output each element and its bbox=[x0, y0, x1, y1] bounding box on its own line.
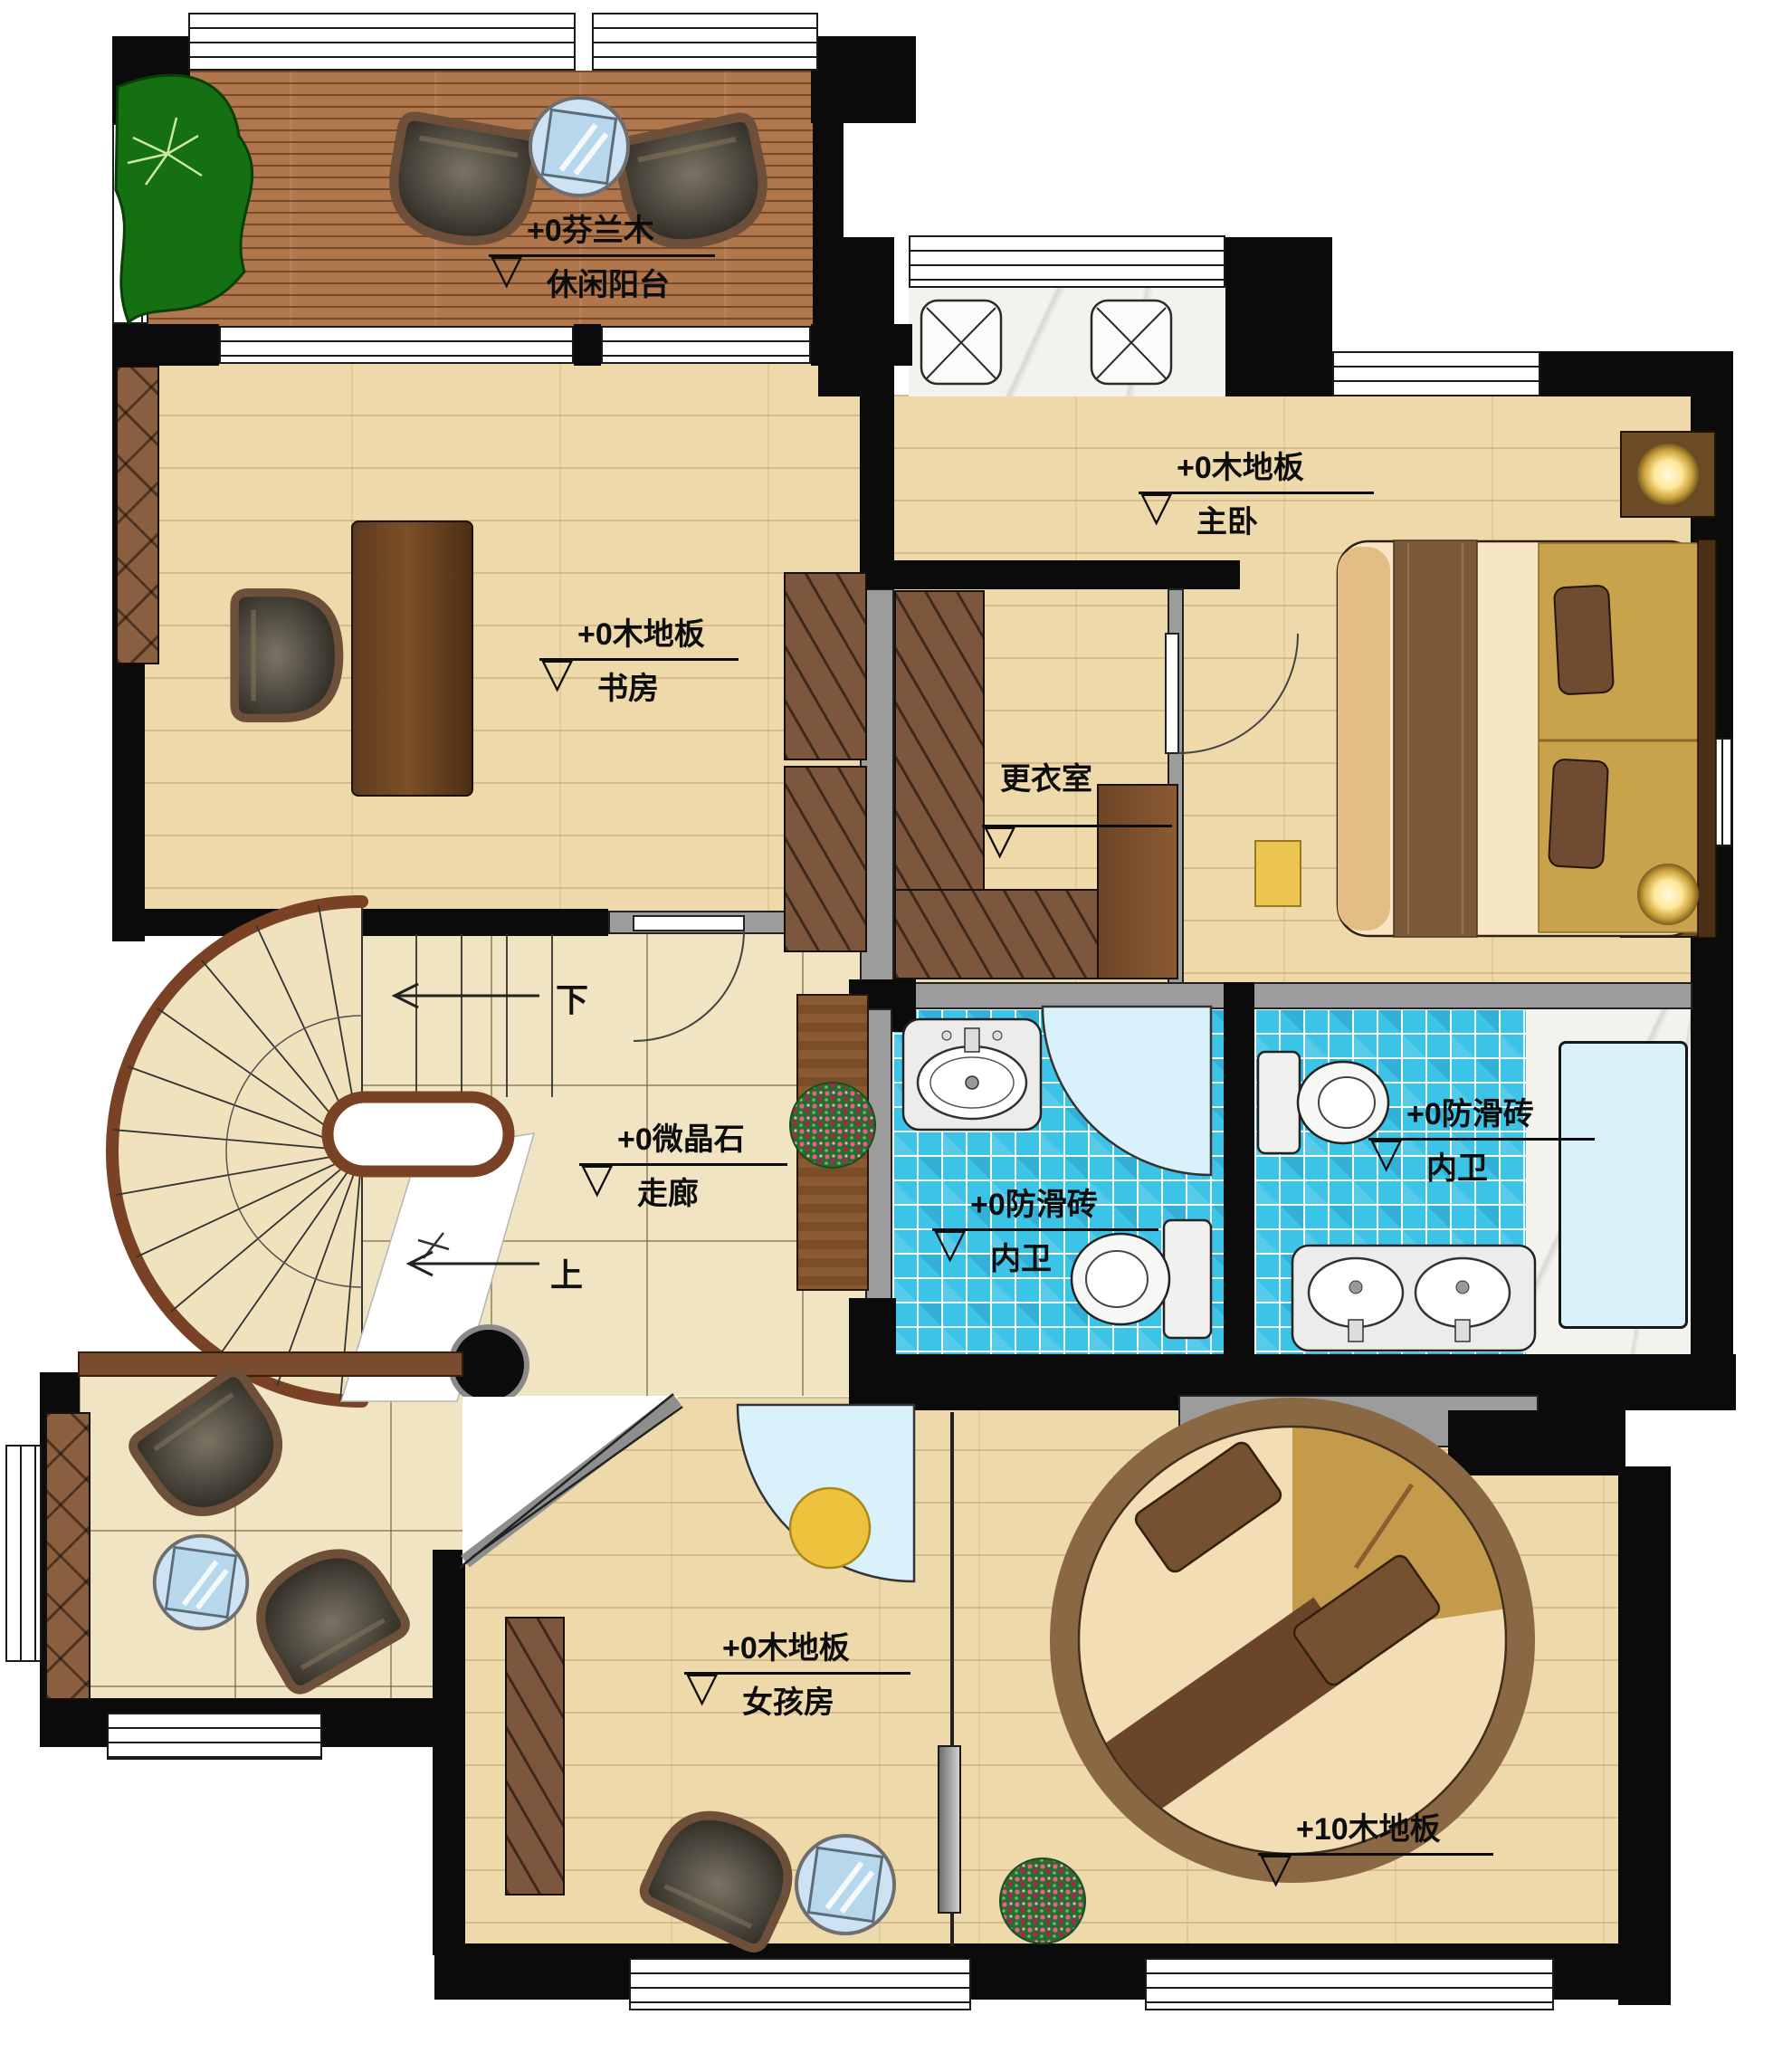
balcony-plant bbox=[116, 75, 253, 322]
label-room-name: 女孩房 bbox=[684, 1685, 910, 1721]
stairs-down-label: 下 bbox=[556, 974, 588, 1021]
window-seat-pillow bbox=[1091, 301, 1171, 384]
elevation-marker: ▽ bbox=[1260, 1847, 1292, 1888]
girls-room-chair bbox=[640, 1797, 805, 1952]
bedside-lamp bbox=[1637, 444, 1699, 505]
label-room-name: 内卫 bbox=[1368, 1151, 1595, 1187]
stairs-up-label: 上 bbox=[550, 1249, 583, 1296]
label-room-name: 更衣室 bbox=[982, 762, 1172, 797]
elevation-marker: ▽ bbox=[984, 818, 1015, 860]
girls-room-table bbox=[796, 1836, 894, 1934]
room-label-platform-bedroom: +10木地板 ▽ bbox=[1258, 1812, 1493, 1856]
nook-chair bbox=[129, 1368, 299, 1533]
flower-pot bbox=[790, 1083, 875, 1168]
label-material: +0防滑砖 bbox=[1368, 1097, 1595, 1132]
elevation-marker: ▽ bbox=[581, 1157, 613, 1198]
floorplan-second-floor: +0芬兰木 ▽ 休闲阳台 +0木地板 ▽ 书房 +0木地板 ▽ 主卧 更衣室 ▽… bbox=[0, 0, 1792, 2053]
bedside-lamp bbox=[1637, 864, 1699, 925]
double-sink-vanity bbox=[1292, 1246, 1535, 1351]
room-label-bathroom-left: +0防滑砖 ▽ 内卫 bbox=[932, 1188, 1158, 1277]
elevation-marker: ▽ bbox=[686, 1666, 718, 1707]
elevation-marker: ▽ bbox=[934, 1222, 966, 1264]
balcony-table bbox=[530, 98, 628, 196]
room-label-bathroom-right: +0防滑砖 ▽ 内卫 bbox=[1368, 1097, 1595, 1187]
elevation-marker: ▽ bbox=[541, 652, 573, 693]
nook-table bbox=[155, 1536, 248, 1629]
room-label-balcony: +0芬兰木 ▽ 休闲阳台 bbox=[489, 214, 715, 303]
room-label-study: +0木地板 ▽ 书房 bbox=[539, 617, 739, 707]
flower-pot bbox=[1000, 1858, 1085, 1943]
label-material: +10木地板 bbox=[1258, 1812, 1493, 1848]
shower-door-swing bbox=[1043, 1007, 1211, 1175]
elevation-marker: ▽ bbox=[491, 248, 522, 290]
label-material: +0木地板 bbox=[684, 1631, 910, 1666]
bedroom-door-swing bbox=[1166, 634, 1298, 753]
room-label-dressing-room: 更衣室 ▽ bbox=[982, 762, 1172, 827]
elevation-marker: ▽ bbox=[1140, 485, 1172, 527]
room-label-girls-room: +0木地板 ▽ 女孩房 bbox=[684, 1631, 910, 1721]
nook-chair bbox=[242, 1533, 410, 1694]
label-room-name: 主卧 bbox=[1139, 505, 1374, 540]
label-material: +0木地板 bbox=[1139, 451, 1374, 486]
elevation-marker: ▽ bbox=[1370, 1132, 1402, 1173]
hall-door-swing bbox=[634, 916, 744, 1041]
window-seat-pillow bbox=[921, 301, 1001, 384]
bathroom-sink bbox=[903, 1019, 1041, 1130]
label-material: +0木地板 bbox=[539, 617, 739, 653]
nook-rail bbox=[79, 1352, 462, 1376]
label-room-name: 内卫 bbox=[932, 1242, 1158, 1277]
room-label-corridor: +0微晶石 ▽ 走廊 bbox=[579, 1122, 787, 1212]
pouf-stool bbox=[790, 1488, 870, 1568]
label-material: +0微晶石 bbox=[579, 1122, 787, 1158]
study-chair bbox=[234, 593, 339, 719]
room-label-master-bedroom: +0木地板 ▽ 主卧 bbox=[1139, 451, 1374, 540]
label-material: +0芬兰木 bbox=[489, 214, 715, 249]
label-material: +0防滑砖 bbox=[932, 1188, 1158, 1223]
furniture-overlay bbox=[0, 0, 1792, 2053]
label-room-name: 休闲阳台 bbox=[489, 268, 715, 303]
